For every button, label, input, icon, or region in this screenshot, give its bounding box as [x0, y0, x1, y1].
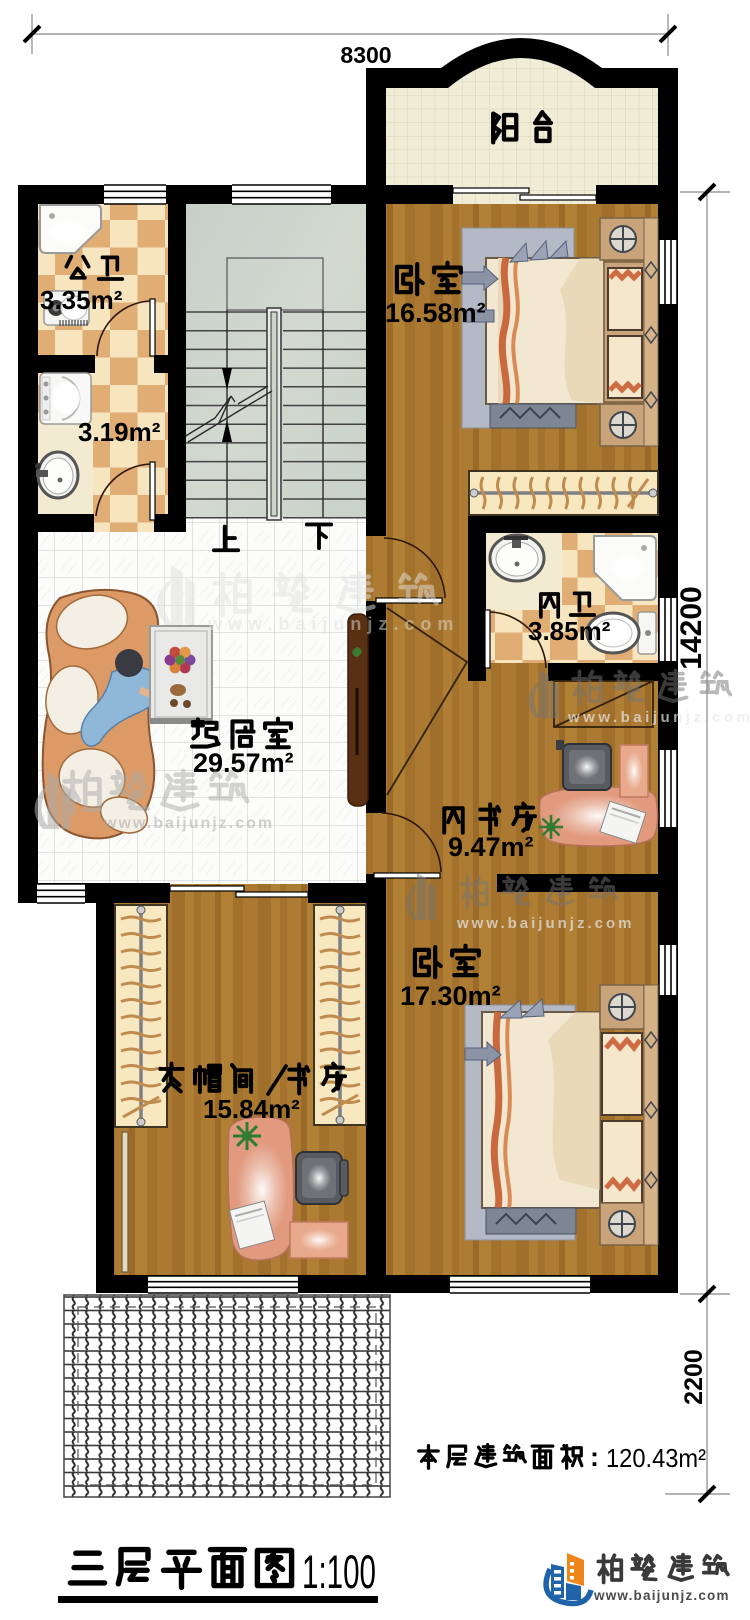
svg-text:17.30m²: 17.30m² [400, 981, 501, 1011]
svg-text:www.baijunjz.com: www.baijunjz.com [593, 1588, 730, 1603]
svg-text:29.57m²: 29.57m² [193, 748, 294, 778]
svg-text:9.47m²: 9.47m² [448, 832, 534, 862]
svg-text:3.35m²: 3.35m² [40, 285, 123, 315]
svg-text:14200: 14200 [675, 586, 708, 669]
svg-text:www.baijunjz.com: www.baijunjz.com [103, 815, 274, 832]
svg-text:1:100: 1:100 [302, 1545, 376, 1598]
svg-text:16.58m²: 16.58m² [385, 298, 486, 328]
svg-text:3.19m²: 3.19m² [78, 417, 161, 447]
svg-text:3.85m²: 3.85m² [528, 616, 611, 646]
svg-text:www.baijunjz.com: www.baijunjz.com [567, 709, 750, 726]
svg-text:2200: 2200 [680, 1349, 708, 1405]
svg-text:15.84m²: 15.84m² [203, 1094, 300, 1124]
svg-text:www.baijunjz.com: www.baijunjz.com [456, 915, 634, 932]
svg-text:www.baijunjz.com: www.baijunjz.com [207, 614, 459, 634]
svg-text:8300: 8300 [340, 42, 391, 68]
svg-text:120.43m²: 120.43m² [606, 1443, 706, 1473]
svg-text::: : [590, 1442, 599, 1472]
